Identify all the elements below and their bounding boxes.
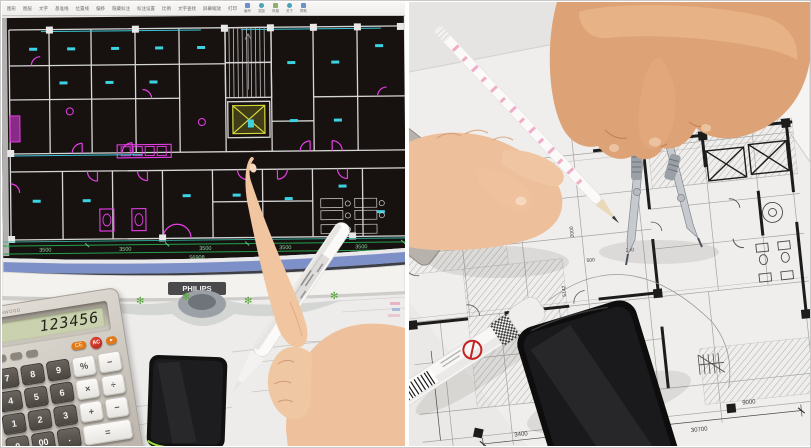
digit-key: 8 [20,362,46,385]
dim-500: 500 [586,257,595,264]
cad-menu-item: 文字查找 [178,6,196,12]
photo-collage: 图形 图层 文字 基准线 位置线 偏移 隐藏标注 标注设置 比例 文字查找 屏幕… [0,0,811,448]
op-key: − [97,350,123,373]
cad-menu-bar: 图形 图层 文字 基准线 位置线 偏移 隐藏标注 标注设置 比例 文字查找 屏幕… [2,2,405,16]
digit-key: 3 [53,404,79,427]
dim-label: 3500 [39,248,51,254]
cad-menu-item: 偏移 [96,6,105,12]
svg-text:✻: ✻ [330,291,338,302]
op-key: + [78,400,104,423]
cad-menu-item: 基准线 [55,6,69,12]
cad-toolbar-item: 帮助 [300,3,307,14]
left-thumbnail [516,197,527,206]
svg-text:✻: ✻ [136,296,144,307]
digit-key: 6 [49,381,75,404]
digit-key: 2 [27,408,53,431]
dim-5142: 5142 [561,285,568,297]
cad-menu-item: 比例 [162,6,171,12]
digit-key: 5 [23,385,49,408]
digit-key: 0 [5,435,31,446]
cad-menu-item: 隐藏标注 [112,6,130,12]
left-photo-monitor-cad: 图形 图层 文字 基准线 位置线 偏移 隐藏标注 标注设置 比例 文字查找 屏幕… [2,2,405,446]
op-key: × [75,377,101,400]
arrow-key: ▸ [106,336,118,346]
digit-key: 1 [2,412,27,435]
tool-icon [287,3,292,8]
op-key: % [71,354,97,377]
right-scene: 3400 30700 9000 500 200 2000 5142 818 [409,2,810,446]
calculator-keypad: 7 8 9 % − 4 5 6 × ÷ 1 2 3 + − 0 00 . = [2,350,135,446]
ce-key: CE [70,340,87,350]
cad-menu-item: 图层 [23,6,32,12]
digit-key: 00 [31,431,57,446]
tool-icon [273,3,278,8]
ac-key: AC [90,336,104,350]
cad-menu-item: 图形 [7,6,16,12]
memory-key [2,354,7,363]
right-thumbnail [649,138,661,147]
tool-icon [259,3,264,8]
dim-2000: 2000 [569,226,576,238]
cad-menu-item: 标注设置 [137,6,155,12]
digit-key: 7 [2,367,20,390]
right-photo-blueprint: 3400 30700 9000 500 200 2000 5142 818 [409,2,810,446]
cad-toolbar-item: 关于 [286,3,293,14]
dim-label: 3500 [279,245,291,251]
equals-key: = [82,418,134,445]
memory-key [10,351,23,360]
svg-text:✻: ✻ [244,296,252,307]
cad-menu-item: 位置线 [76,6,90,12]
digit-key: 4 [2,389,24,412]
cad-toolbar-item: 编号 [244,3,251,14]
digit-key: 9 [46,358,72,381]
cad-menu-item: 屏幕缩放 [203,6,221,12]
tool-icon [301,3,306,8]
digit-key: . [56,427,82,446]
dim-label: 3500 [355,244,367,250]
tool-icon [245,3,250,8]
svg-text:✻: ✻ [182,292,190,303]
cad-menu-item: 文字 [39,6,48,12]
cad-toolbar-item: 风格 [272,3,279,14]
op-key: ÷ [100,373,126,396]
dim-label: 3500 [119,247,131,253]
op-key: − [104,396,130,419]
memory-key [25,349,38,358]
smartphone-left [146,355,227,446]
cad-menu-item: 打印 [228,6,237,12]
cad-toolbar-item: 变距 [258,3,265,14]
dim-label: 3500 [199,246,211,252]
